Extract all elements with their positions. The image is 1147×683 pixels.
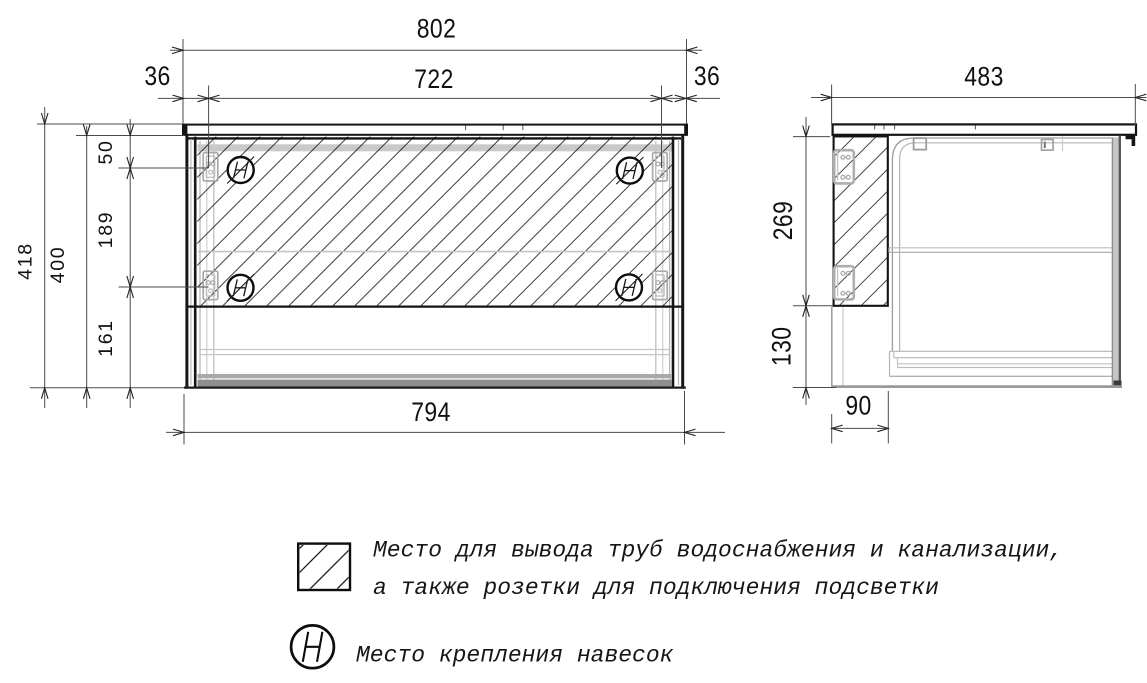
svg-text:36: 36 — [694, 61, 720, 91]
svg-text:483: 483 — [964, 62, 1004, 92]
svg-text:722: 722 — [414, 64, 454, 94]
svg-text:161: 161 — [95, 319, 117, 357]
svg-text:130: 130 — [767, 327, 797, 367]
svg-text:36: 36 — [144, 61, 170, 91]
svg-text:а также розетки для подключени: а также розетки для подключения подсветк… — [373, 575, 939, 601]
svg-text:189: 189 — [95, 211, 117, 249]
svg-text:Место для вывода труб водоснаб: Место для вывода труб водоснабжения и ка… — [373, 538, 1063, 564]
svg-text:90: 90 — [845, 391, 871, 421]
svg-text:50: 50 — [95, 139, 117, 164]
svg-text:418: 418 — [15, 242, 37, 280]
svg-text:802: 802 — [417, 14, 457, 44]
svg-text:794: 794 — [411, 397, 451, 427]
svg-text:Место крепления навесок: Место крепления навесок — [356, 643, 674, 669]
svg-text:269: 269 — [768, 201, 798, 241]
svg-text:400: 400 — [47, 246, 69, 284]
